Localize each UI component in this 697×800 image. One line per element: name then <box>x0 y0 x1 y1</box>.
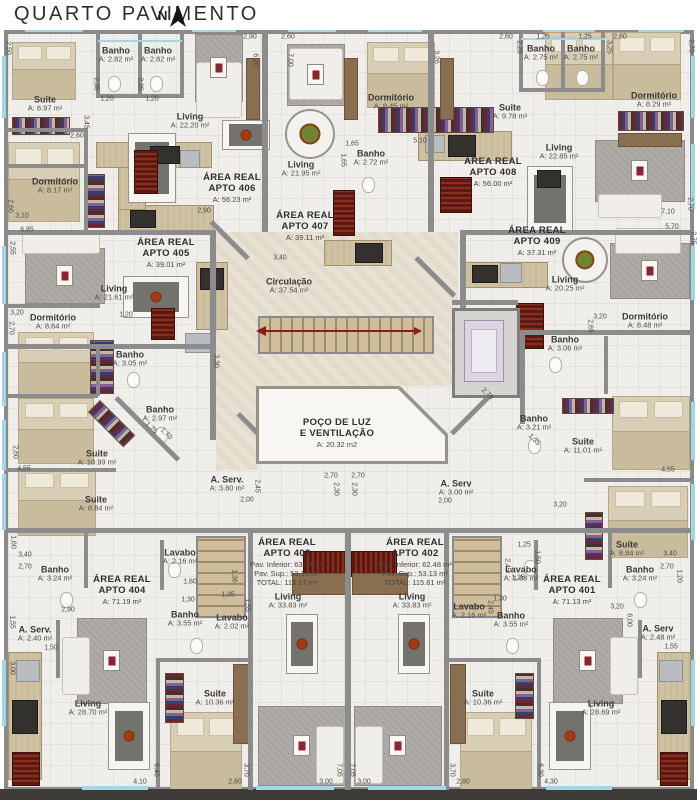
room-label-banho: BanhoA: 3.06 m² <box>548 335 583 352</box>
apartment-label-line: POÇO DE LUZ <box>300 417 374 428</box>
dimension-label: 2,70 <box>660 564 674 571</box>
toilet-fixture <box>506 638 519 654</box>
room-area: A: 8.48 m² <box>622 322 668 330</box>
apartment-label-line: A: 37.31 m² <box>508 248 566 257</box>
dimension-label: 1,30 <box>181 597 195 604</box>
apartment-label-line: APTO 402 <box>378 549 452 560</box>
wine-cabinet <box>333 190 355 236</box>
apartment-label-line: Pav. Sup.: 53.13 m² <box>250 569 324 578</box>
room-area: A: 28.70 m² <box>69 709 108 717</box>
apartment-label-line: APTO 407 <box>276 222 334 233</box>
room-area: A: 2.82 m² <box>99 56 134 64</box>
toilet-fixture <box>362 177 375 193</box>
toilet-fixture <box>576 70 589 86</box>
dimension-label: 2,65 <box>587 319 594 333</box>
bed-pillow <box>467 718 494 736</box>
rug-art-motif <box>312 70 319 79</box>
room-area: A: 33.83 m² <box>269 602 308 610</box>
plan-canvas: SuiteA: 8.97 m²BanhoA: 2.82 m²BanhoA: 2.… <box>0 0 697 800</box>
apartment-label-line: ÁREA REAL <box>276 210 334 221</box>
rug-art-motif <box>298 741 305 750</box>
room-area: A: 2.40 m² <box>18 635 53 643</box>
window-segment <box>691 660 695 726</box>
apartment-label-line: A: 39.01 m² <box>137 260 195 269</box>
rug-art-motif <box>61 271 68 280</box>
window-segment <box>691 246 695 300</box>
dimension-label: 4,55 <box>17 466 31 473</box>
room-label-a-serv: A. ServA: 3.00 m² <box>439 479 474 496</box>
fruit-bowl <box>298 640 307 649</box>
room-label-banho: BanhoA: 2.82 m² <box>99 46 134 63</box>
dining-table <box>108 702 150 770</box>
bed-blanket <box>19 362 93 395</box>
bed <box>460 712 532 796</box>
rug-art-motif <box>215 63 222 72</box>
elevator-cab-inner <box>471 329 497 373</box>
dimension-label: 2,70 <box>351 473 365 480</box>
apartment-label: ÁREA REALAPTO 403Pav. Inferior: 63.04 m²… <box>250 537 324 587</box>
room-area: A: 2.48 m² <box>641 634 676 642</box>
cooktop-appliance <box>661 700 687 734</box>
room-area: A: 3.21 m² <box>517 424 552 432</box>
room-label-banho: BanhoA: 3.24 m² <box>623 565 658 582</box>
rug-art-frame <box>631 160 648 181</box>
interior-wall <box>604 336 608 394</box>
room-area: A: 20.25 m² <box>546 285 585 293</box>
room-label-a-serv-: A. Serv.A: 3.80 m² <box>210 475 245 492</box>
window-segment <box>2 420 6 470</box>
room-label-dormit-rio: DormitórioA: 8.48 m² <box>622 312 668 329</box>
apartment-label-line: TOTAL: 115.61 m² <box>378 578 452 587</box>
room-area: A: 2.75 m² <box>564 54 599 62</box>
table-centerpiece <box>299 123 320 144</box>
room-label-banho: BanhoA: 2.75 m² <box>524 44 559 61</box>
apartment-label-line: A: 71.19 m² <box>93 597 151 606</box>
wood-panel <box>344 58 358 120</box>
dimension-label: 2,90 <box>61 607 75 614</box>
wine-cabinet <box>12 752 40 786</box>
window-segment <box>521 38 605 40</box>
room-label-lavabo: LavaboA: 2.16 m² <box>163 548 198 565</box>
room-area: A: 28.69 m² <box>582 709 621 717</box>
bottom-facade-band <box>0 789 697 800</box>
rug-art-motif <box>636 166 643 175</box>
room-area: A: 8.84 m² <box>610 550 645 558</box>
room-label-suite: SuiteA: 10.99 m² <box>78 449 117 466</box>
bed-pillow <box>619 401 648 417</box>
wood-panel <box>618 133 682 147</box>
apartment-label-line: A: 71.13 m² <box>543 597 601 606</box>
room-label-dormit-rio: DormitórioA: 8.17 m² <box>32 177 78 194</box>
toilet-fixture <box>127 372 140 388</box>
dimension-label: 5,70 <box>665 224 679 231</box>
room-label-suite: SuiteA: 8.84 m² <box>610 540 645 557</box>
dimension-label: 3,10 <box>15 213 29 220</box>
dimension-label: 7,10 <box>661 209 675 216</box>
rug-art-frame <box>210 57 227 78</box>
dimension-label: 2,50 <box>5 41 12 55</box>
room-area: A: 3.00 m² <box>439 489 474 497</box>
wardrobe-closet <box>562 398 614 414</box>
dimension-label: 2,45 <box>254 479 261 493</box>
cooktop-appliance <box>537 170 561 188</box>
cooktop-appliance <box>12 700 38 734</box>
room-area: A: 8.29 m² <box>631 101 677 109</box>
interior-wall <box>4 394 98 398</box>
dimension-label: 1,50 <box>44 645 58 652</box>
dimension-label: 2,70 <box>8 321 15 335</box>
fruit-bowl <box>410 640 419 649</box>
sink-appliance <box>180 150 200 168</box>
bed <box>12 42 76 100</box>
room-label-banho: BanhoA: 3.24 m² <box>38 565 73 582</box>
sofa <box>598 194 662 218</box>
room-area: A: 2.72 m² <box>354 159 389 167</box>
room-area: A: 3.05 m² <box>113 360 148 368</box>
room-label-lavabo: LavaboA: 2.02 m² <box>215 613 250 630</box>
stair-arrowhead-left <box>256 326 266 336</box>
bed-pillow <box>15 148 42 166</box>
north-indicator: N <box>158 5 187 28</box>
apartment-label-line: A: 39.11 m² <box>276 233 334 242</box>
wood-panel <box>246 58 260 120</box>
window-segment <box>546 786 612 790</box>
bed-pillow <box>59 403 88 418</box>
bed-blanket <box>613 431 689 469</box>
dimension-label: 2,55 <box>9 241 16 255</box>
dimension-label: 2,60 <box>281 34 295 41</box>
interior-wall <box>210 230 216 352</box>
apartment-label-line: APTO 403 <box>250 549 324 560</box>
dimension-label: 1,25 <box>511 575 525 582</box>
room-area: A: 3.24 m² <box>623 575 658 583</box>
room-label-dormit-rio: DormitórioA: 8.45 m² <box>368 93 414 110</box>
apartment-label: ÁREA REALAPTO 404A: 71.19 m² <box>93 574 151 606</box>
apartment-label-line: APTO 408 <box>464 168 522 179</box>
sofa <box>355 726 383 784</box>
dimension-label: 2,80 <box>228 779 242 786</box>
room-area: A: 22.85 m² <box>540 153 579 161</box>
room-area: A: 2.02 m² <box>215 623 250 631</box>
main-staircase <box>258 316 434 354</box>
dimension-label: 2,80 <box>456 779 470 786</box>
dimension-label: 1,65 <box>345 141 359 148</box>
dimension-label: 3,00 <box>319 779 333 786</box>
apartment-label: ÁREA REALAPTO 402Pav. Inferior: 62.48 m²… <box>378 537 452 587</box>
apartment-label-line: ÁREA REAL <box>203 172 261 183</box>
bed-pillow <box>18 46 42 59</box>
room-label-lavabo: LavaboA: 2.16 m² <box>452 602 487 619</box>
bed <box>612 396 690 470</box>
dimension-label: 6,00 <box>626 613 633 627</box>
dimension-label: 7,00 <box>287 53 294 67</box>
wardrobe-closet <box>12 117 70 135</box>
bed-pillow <box>373 47 399 62</box>
dimension-label: 5,10 <box>413 138 427 145</box>
sofa <box>610 637 638 695</box>
room-label-living: LivingA: 28.69 m² <box>582 699 621 716</box>
stair-arrowhead-right <box>414 327 422 335</box>
window-segment <box>98 40 182 42</box>
room-label-a-serv-: A. Serv.A: 2.40 m² <box>18 625 53 642</box>
wine-cabinet <box>660 752 688 786</box>
round-dining-table <box>285 109 335 159</box>
room-label-living: LivingA: 22.20 m² <box>171 112 210 129</box>
dimension-label: 3,26 <box>433 50 440 64</box>
dimension-label: 1,55 <box>244 598 251 612</box>
room-label-banho: BanhoA: 3.05 m² <box>113 350 148 367</box>
interior-wall <box>520 330 692 335</box>
room-area: A: 2.16 m² <box>452 612 487 620</box>
interior-wall <box>4 344 214 349</box>
dimension-label: 3,25 <box>606 40 613 54</box>
room-area: A: 8.64 m² <box>30 323 76 331</box>
window-segment <box>691 56 695 118</box>
apartment-label-line: Pav. Inferior: 63.04 m² <box>250 560 324 569</box>
dimension-label: 4,55 <box>661 467 675 474</box>
room-label-living: LivingA: 28.70 m² <box>69 699 108 716</box>
rug-art-frame <box>641 260 658 281</box>
window-segment <box>256 786 334 790</box>
room-label-banho: BanhoA: 2.72 m² <box>354 149 389 166</box>
window-segment <box>2 56 6 118</box>
room-label-dormit-rio: DormitórioA: 8.64 m² <box>30 313 76 330</box>
fruit-bowl <box>152 293 161 302</box>
sink-appliance <box>185 333 211 353</box>
room-area: A: 3.55 m² <box>168 620 203 628</box>
dimension-label: 3,70 <box>449 763 456 777</box>
interior-wall <box>452 300 518 305</box>
bed-pillow <box>404 47 430 62</box>
dimension-label: 3,20 <box>593 314 607 321</box>
dimension-label: 2,60 <box>12 445 19 459</box>
room-label-a-serv: A. ServA: 2.48 m² <box>641 624 676 641</box>
room-area: A: 2.75 m² <box>524 54 559 62</box>
apartment-label-line: E VENTILAÇÃO <box>300 429 374 440</box>
apartment-label-line: TOTAL: 116.17 m² <box>250 578 324 587</box>
interior-wall <box>345 528 351 790</box>
dimension-label: 3,45 <box>83 115 90 129</box>
floor-plan-page: QUARTO PAVIMENTO N SuiteA: 8.97 m²BanhoA… <box>0 0 697 800</box>
dimension-label: 2,60 <box>499 34 513 41</box>
room-label-suite: SuiteA: 9.78 m² <box>493 103 528 120</box>
apartment-label: ÁREA REALAPTO 401A: 71.13 m² <box>543 574 601 606</box>
dimension-label: 2,60 <box>7 199 14 213</box>
dimension-label: 2,70 <box>324 473 338 480</box>
interior-wall <box>96 344 100 396</box>
bed-pillow <box>499 718 526 736</box>
dimension-label: 3,30 <box>213 354 220 368</box>
dimension-label: 2,30 <box>351 482 358 496</box>
rug-art-frame <box>307 64 324 85</box>
dimension-label: 2,70 <box>688 39 695 53</box>
dimension-label: 1,25 <box>517 542 531 549</box>
dimension-label: 2,75 <box>690 231 697 245</box>
room-area: A: 9.78 m² <box>493 113 528 121</box>
bed-pillow <box>209 718 236 736</box>
rug-art-motif <box>646 266 653 275</box>
dimension-label: 1,60 <box>10 535 17 549</box>
apartment-label-line: ÁREA REAL <box>250 537 324 548</box>
dimension-label: 2,60 <box>613 34 627 41</box>
dimension-label: 2,60 <box>70 133 84 140</box>
window-segment <box>2 246 6 304</box>
wardrobe-closet <box>165 673 184 723</box>
room-label-living: LivingA: 22.85 m² <box>540 143 579 160</box>
room-label-banho: BanhoA: 3.21 m² <box>517 414 552 431</box>
dimension-label: 2,20 <box>516 40 523 54</box>
room-area: A: 10.99 m² <box>78 459 117 467</box>
dimension-label: 6,85 <box>20 227 34 234</box>
duplex-staircase-left <box>196 536 246 618</box>
wood-panel <box>440 58 454 120</box>
dimension-label: 1,25 <box>578 34 592 41</box>
fruit-bowl <box>125 732 134 741</box>
room-area: A: 8.84 m² <box>79 505 114 513</box>
dimension-label: 1,25 <box>536 34 550 41</box>
bed-pillow <box>47 148 74 166</box>
room-area: A: 2.16 m² <box>163 558 198 566</box>
room-label-circula-o: CirculaçãoA: 37.54 m² <box>266 277 312 294</box>
dimension-label: 4,10 <box>133 779 147 786</box>
apartment-label-line: Pav. Inferior: 62.48 m² <box>378 560 452 569</box>
toilet-fixture <box>536 70 549 86</box>
room-area: A: 3.55 m² <box>494 621 529 629</box>
room-area: A: 10.36 m² <box>464 699 503 707</box>
dimension-label: 1,80 <box>183 579 197 586</box>
room-label-suite: SuiteA: 10.36 m² <box>464 689 503 706</box>
interior-wall <box>4 128 88 132</box>
apartment-label-line: Pav. Sup.: 53.13 m² <box>378 569 452 578</box>
dimension-label: 2,00 <box>438 498 452 505</box>
room-label-banho: BanhoA: 3.55 m² <box>494 611 529 628</box>
apartment-label-line: APTO 405 <box>137 249 195 260</box>
room-area: A: 11.01 m² <box>564 447 602 455</box>
dimension-label: 1,20 <box>119 312 133 319</box>
dimension-label: 2,90 <box>243 34 257 41</box>
interior-wall <box>4 304 100 308</box>
title-bar: QUARTO PAVIMENTO N <box>0 0 697 30</box>
apartment-label-line: APTO 406 <box>203 184 261 195</box>
dining-table <box>398 614 430 674</box>
window-segment <box>691 402 695 460</box>
elevator <box>452 308 520 398</box>
room-label-banho: BanhoA: 2.82 m² <box>141 46 176 63</box>
dimension-label: 2,35 <box>137 77 144 91</box>
bed-pillow <box>25 473 54 488</box>
dimension-label: 1,30 <box>493 596 507 603</box>
table-centerpiece <box>575 250 594 269</box>
rug-art-motif <box>394 741 401 750</box>
dimension-label: 3,00 <box>9 661 16 675</box>
apartment-label-line: ÁREA REAL <box>464 156 522 167</box>
wine-cabinet <box>134 150 158 194</box>
interior-wall <box>262 30 268 232</box>
dimension-label: 1,20 <box>676 569 683 583</box>
interior-wall <box>519 88 605 92</box>
room-label-living: LivingA: 33.83 m² <box>393 592 432 609</box>
sofa <box>22 232 100 254</box>
stair-direction-arrow <box>266 330 418 332</box>
room-label-suite: SuiteA: 10.36 m² <box>196 689 235 706</box>
room-area: A: 22.20 m² <box>171 122 210 130</box>
bed-pillow <box>651 491 681 507</box>
room-area: A: 2.82 m² <box>141 56 176 64</box>
apartment-label-line: APTO 409 <box>508 237 566 248</box>
apartment-label-line: APTO 401 <box>543 586 601 597</box>
toilet-fixture <box>549 357 562 373</box>
sink-appliance <box>16 660 40 682</box>
north-label: N <box>158 8 167 23</box>
dimension-label: 1,35 <box>221 592 235 599</box>
sink-appliance <box>659 660 683 682</box>
dimension-label: 2,30 <box>333 482 340 496</box>
wardrobe-closet <box>618 111 684 131</box>
dimension-label: 3,00 <box>357 779 371 786</box>
room-area: A: 8.97 m² <box>28 105 63 113</box>
rug-art-motif <box>108 656 115 665</box>
dimension-label: 6,40 <box>153 763 160 777</box>
rug-art-frame <box>579 650 596 671</box>
window-segment <box>2 660 6 726</box>
dimension-label: 3,70 <box>243 763 250 777</box>
interior-wall <box>156 658 250 662</box>
sink-appliance <box>500 263 522 283</box>
dimension-label: 3,40 <box>663 551 677 558</box>
interior-wall <box>608 530 612 588</box>
room-area: A: 3.80 m² <box>210 485 245 493</box>
dimension-label: 1,20 <box>145 96 159 103</box>
room-label-banho: BanhoA: 2.75 m² <box>564 44 599 61</box>
interior-wall <box>584 478 692 482</box>
room-area: A: 21.61 m² <box>95 294 134 302</box>
room-label-banho: BanhoA: 3.55 m² <box>168 610 203 627</box>
dimension-label: 2,90 <box>197 208 211 215</box>
dining-table <box>286 614 318 674</box>
wine-cabinet <box>151 308 175 340</box>
dimension-label: 2,45 <box>504 558 511 572</box>
apartment-label-line: ÁREA REAL <box>93 574 151 585</box>
apartment-label: ÁREA REALAPTO 407A: 39.11 m² <box>276 210 334 242</box>
room-area: A: 33.83 m² <box>393 602 432 610</box>
dimension-label: 3,20 <box>10 310 24 317</box>
apartment-label: ÁREA REALAPTO 409A: 37.31 m² <box>508 225 566 257</box>
room-area: A: 8.45 m² <box>368 103 414 111</box>
room-label-living: LivingA: 33.83 m² <box>269 592 308 609</box>
rug-art-frame <box>56 265 73 286</box>
room-label-living: LivingA: 20.25 m² <box>546 275 585 292</box>
room-label-living: LivingA: 21.61 m² <box>95 284 134 301</box>
page-title: QUARTO PAVIMENTO <box>14 3 259 26</box>
wardrobe-closet <box>86 174 105 228</box>
window-segment <box>691 484 695 540</box>
apartment-label: ÁREA REALAPTO 406A: 56.23 m² <box>203 172 261 204</box>
bed-pillow <box>650 37 676 52</box>
interior-wall <box>460 230 692 235</box>
wardrobe-closet <box>515 673 534 719</box>
dimension-label: 2,70 <box>18 564 32 571</box>
dimension-label: 1,55 <box>9 615 16 629</box>
apartment-label-line: ÁREA REAL <box>137 237 195 248</box>
dimension-label: 6,30 <box>537 763 544 777</box>
dimension-label: 7,05 <box>336 763 343 777</box>
toilet-fixture <box>190 638 203 654</box>
bed-pillow <box>46 46 70 59</box>
cooktop-appliance <box>448 135 476 157</box>
rug-art-frame <box>103 650 120 671</box>
dimension-label: 6,20 <box>252 53 259 67</box>
room-area: A: 3.06 m² <box>548 345 583 353</box>
